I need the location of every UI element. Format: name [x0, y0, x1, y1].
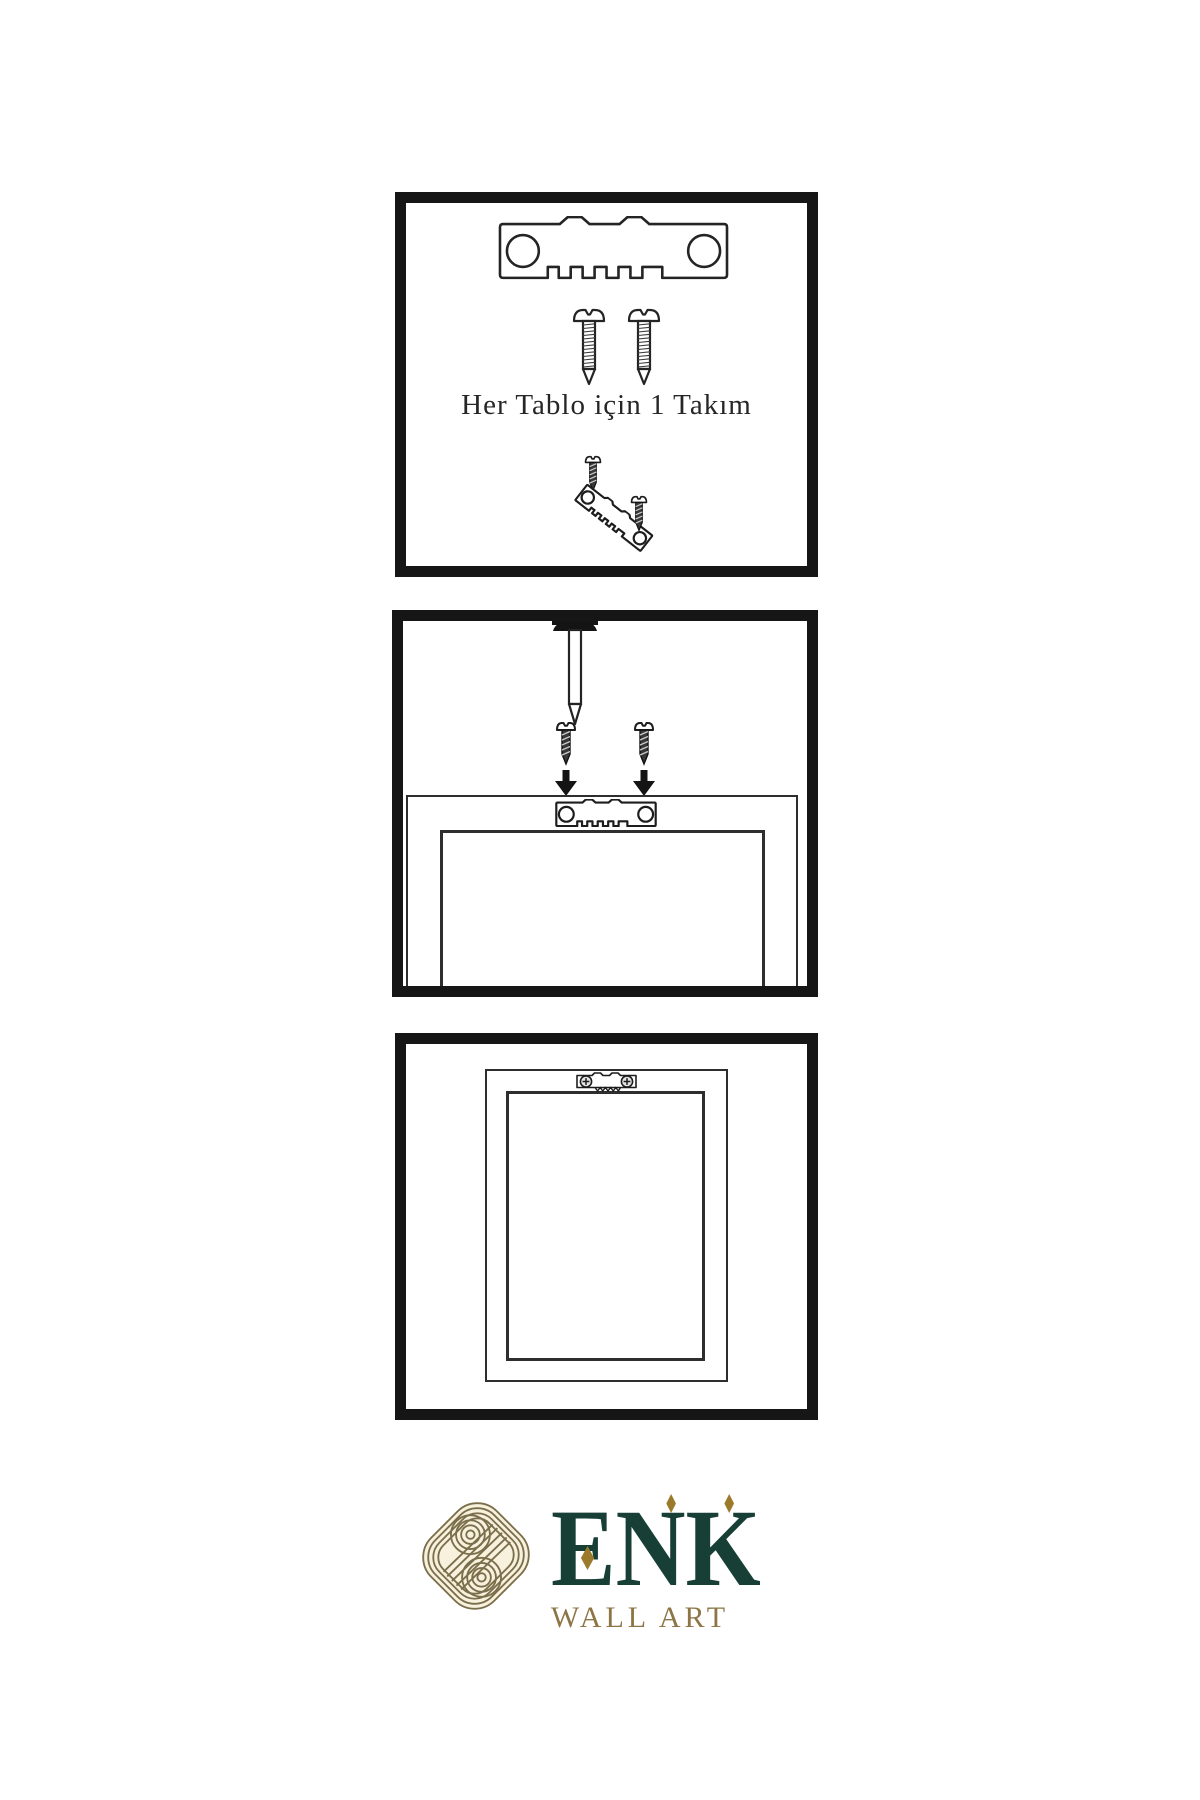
step3-panel-hung-frame	[395, 1033, 818, 1420]
instruction-sheet: Her Tablo için 1 Takım	[0, 0, 1200, 1800]
screw-icon	[571, 307, 607, 387]
kit-caption: Her Tablo için 1 Takım	[406, 389, 807, 422]
screw-icon	[626, 307, 662, 387]
sawtooth-hanger-mounted-icon	[555, 799, 657, 827]
sawtooth-hanger-icon	[497, 216, 730, 280]
frame-back-inner	[440, 830, 765, 995]
brand-wordmark: ENK WALL ART	[551, 1508, 789, 1635]
dark-screw-icon	[633, 721, 655, 767]
frame-front-inner	[506, 1091, 705, 1361]
sawtooth-hanger-installed-icon	[575, 1072, 638, 1093]
dark-screw-icon	[555, 721, 577, 767]
brand-logo: ENK WALL ART	[0, 1484, 1200, 1635]
arrow-down-icon	[554, 770, 578, 797]
step2-panel-mount-hanger	[392, 610, 818, 997]
arrow-down-icon	[632, 770, 656, 797]
wall-nail-icon	[552, 618, 598, 728]
dark-screw-icon	[628, 495, 650, 533]
brand-name: ENK	[551, 1508, 761, 1592]
brand-knot-icon	[411, 1484, 541, 1628]
step1-panel-hardware-kit: Her Tablo için 1 Takım	[395, 192, 818, 577]
